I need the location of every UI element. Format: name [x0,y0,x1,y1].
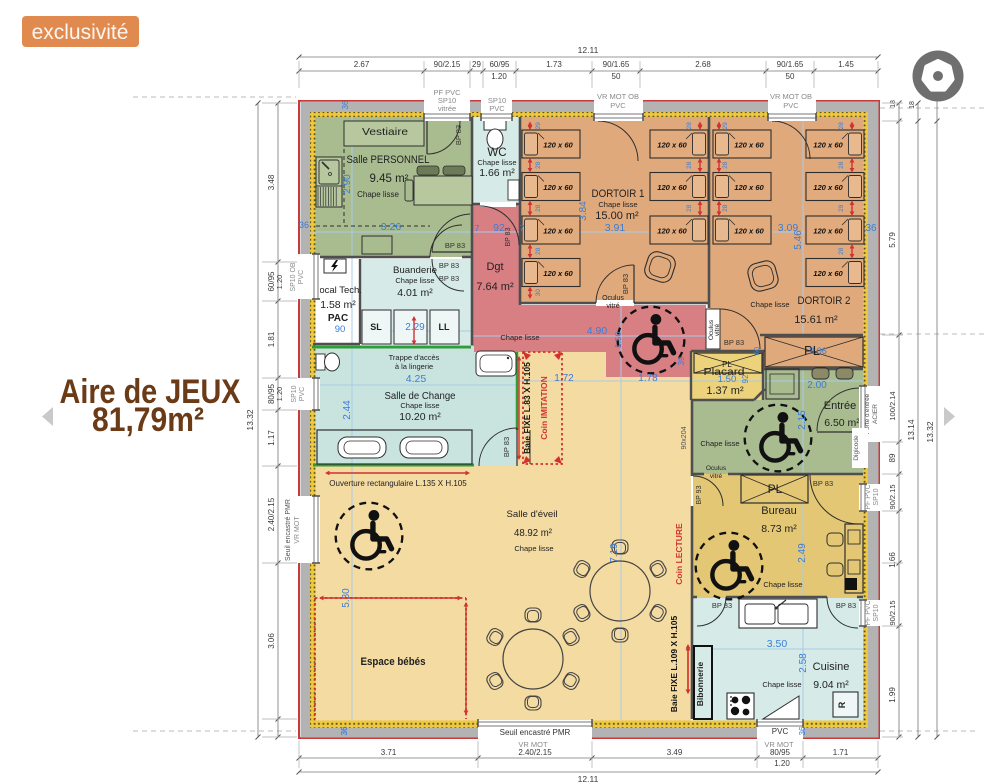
svg-text:3.84: 3.84 [578,201,589,221]
svg-text:BP 83: BP 83 [813,479,833,488]
svg-text:3.91: 3.91 [605,222,626,234]
svg-text:5.30: 5.30 [341,588,352,608]
svg-text:PVC: PVC [489,104,505,113]
svg-text:28: 28 [686,161,693,169]
svg-text:60: 60 [752,347,761,355]
svg-text:SP10: SP10 [873,488,880,505]
svg-text:50: 50 [786,72,795,81]
svg-text:1.81: 1.81 [267,331,276,347]
svg-text:BP 83: BP 83 [445,241,465,250]
svg-text:15.61 m²: 15.61 m² [794,314,838,326]
svg-text:9.04 m²: 9.04 m² [813,679,849,691]
svg-text:SP10 OB: SP10 OB [290,262,297,292]
svg-text:1.78: 1.78 [638,373,658,384]
svg-text:Salle PERSONNEL: Salle PERSONNEL [347,154,430,166]
svg-text:90/2.15: 90/2.15 [888,600,897,625]
svg-text:ACIER: ACIER [872,404,879,424]
svg-text:7: 7 [520,223,525,233]
svg-text:2.00: 2.00 [807,380,827,391]
svg-text:Chape lisse: Chape lisse [514,544,553,553]
svg-text:1.66: 1.66 [888,552,897,568]
svg-text:2.49: 2.49 [797,543,808,563]
svg-text:Bibonnerie: Bibonnerie [695,662,705,707]
svg-text:Dgt: Dgt [486,261,503,273]
svg-text:Chape lisse: Chape lisse [750,300,789,309]
svg-text:BP 83: BP 83 [502,437,511,457]
svg-text:2.68: 2.68 [695,60,711,69]
svg-text:BP 83: BP 83 [724,338,744,347]
svg-text:DORTOIR 2: DORTOIR 2 [798,295,851,307]
svg-text:89: 89 [888,453,897,462]
svg-text:Chape lisse: Chape lisse [400,401,439,410]
svg-text:Cuisine: Cuisine [813,661,850,673]
svg-text:3.48: 3.48 [267,174,276,190]
svg-text:39: 39 [677,356,686,365]
svg-text:4.25: 4.25 [406,373,427,385]
svg-text:12.11: 12.11 [578,774,599,784]
svg-text:Baie FIXE L.109 X H.105: Baie FIXE L.109 X H.105 [669,616,679,713]
svg-text:PVC: PVC [298,270,305,284]
svg-text:2.40/2.15: 2.40/2.15 [267,497,276,531]
svg-text:1.58 m²: 1.58 m² [320,299,356,311]
svg-text:1.99: 1.99 [888,687,897,703]
svg-text:BP 83: BP 83 [621,274,630,294]
svg-text:50: 50 [612,72,621,81]
svg-text:Bureau: Bureau [761,505,796,517]
svg-text:Chape lisse: Chape lisse [357,190,399,199]
svg-text:Buanderie: Buanderie [393,265,437,276]
svg-text:5.46: 5.46 [793,230,804,250]
svg-text:15.00 m²: 15.00 m² [595,210,639,222]
svg-text:80/95: 80/95 [770,748,791,757]
svg-text:90x204: 90x204 [681,426,688,449]
svg-text:28: 28 [535,204,542,212]
svg-text:4.01 m²: 4.01 m² [397,287,433,299]
svg-text:Chape lisse: Chape lisse [762,680,801,689]
svg-text:7.64 m²: 7.64 m² [476,281,514,293]
svg-text:1.20: 1.20 [491,72,507,81]
svg-text:Seuil encastré PMR: Seuil encastré PMR [285,499,292,561]
svg-text:BP 83: BP 83 [454,125,463,145]
svg-text:13.32: 13.32 [245,409,255,431]
svg-text:Coin LECTURE: Coin LECTURE [674,523,684,585]
svg-text:28: 28 [535,247,542,255]
svg-text:1.66 m²: 1.66 m² [479,167,515,179]
svg-text:PVC: PVC [783,101,799,110]
svg-text:29: 29 [472,60,481,69]
svg-text:Salle d'éveil: Salle d'éveil [507,509,558,520]
svg-text:Chape lisse: Chape lisse [395,276,434,285]
svg-text:3.50: 3.50 [767,638,788,650]
svg-text:R: R [837,701,847,708]
svg-text:90/2.15: 90/2.15 [888,484,897,509]
svg-text:90/1.65: 90/1.65 [603,60,630,69]
svg-text:10.20 m²: 10.20 m² [399,411,441,423]
svg-text:4.90: 4.90 [587,325,608,337]
svg-text:2.40/2.15: 2.40/2.15 [518,748,552,757]
svg-text:Digicode: Digicode [853,435,860,461]
svg-text:Chape lisse: Chape lisse [500,333,539,342]
svg-text:PVC: PVC [610,101,626,110]
svg-text:28: 28 [686,204,693,212]
svg-text:1.37 m²: 1.37 m² [706,385,744,397]
svg-text:2.06: 2.06 [809,346,827,356]
svg-text:1.45: 1.45 [838,60,854,69]
svg-text:1.50: 1.50 [613,331,623,348]
svg-text:LL: LL [439,322,450,332]
svg-text:BP 83: BP 83 [836,601,856,610]
svg-text:Entrée: Entrée [824,400,856,412]
svg-text:BP 83: BP 83 [439,274,459,283]
svg-text:9.45 m²: 9.45 m² [370,173,409,185]
svg-text:PF PVC: PF PVC [865,600,872,625]
svg-text:BP 93: BP 93 [696,485,703,504]
svg-text:36: 36 [865,223,877,234]
svg-text:28: 28 [838,247,845,255]
svg-text:28: 28 [838,161,845,169]
svg-text:Trappe d'accès: Trappe d'accès [389,353,440,362]
svg-text:3.06: 3.06 [267,633,276,649]
svg-text:28: 28 [722,204,729,212]
svg-text:28: 28 [535,161,542,169]
svg-text:3.71: 3.71 [381,748,397,757]
svg-text:Vestiaire: Vestiaire [362,126,408,138]
svg-text:18: 18 [890,100,897,108]
svg-text:28: 28 [686,122,693,130]
svg-text:2.90: 2.90 [342,174,353,194]
svg-text:PVC: PVC [299,387,306,401]
svg-text:100/2.14: 100/2.14 [888,391,897,420]
svg-text:PL: PL [768,482,783,496]
svg-text:2.67: 2.67 [354,60,370,69]
svg-text:vitrée: vitrée [438,104,456,113]
svg-text:PVC: PVC [772,727,789,736]
svg-text:Baie FIXE L.83 X H.105: Baie FIXE L.83 X H.105 [522,362,532,454]
svg-text:2.15: 2.15 [797,410,808,430]
svg-text:29: 29 [838,204,845,212]
svg-text:1.20: 1.20 [275,387,284,402]
svg-text:28: 28 [722,161,729,169]
svg-text:PF PVC: PF PVC [865,484,872,509]
svg-text:60/95: 60/95 [489,60,510,69]
svg-text:Chape lisse: Chape lisse [477,158,516,167]
svg-text:28: 28 [838,122,845,130]
svg-text:7.19: 7.19 [609,543,620,563]
svg-text:29: 29 [722,122,729,130]
svg-text:2.44: 2.44 [342,400,353,420]
svg-text:DORTOIR 1: DORTOIR 1 [592,188,645,200]
svg-text:90: 90 [335,324,346,335]
svg-text:2.29: 2.29 [405,322,425,333]
svg-text:Espace bébés: Espace bébés [361,656,426,668]
svg-text:81,79m²: 81,79m² [92,401,204,439]
svg-text:PAC: PAC [328,313,348,324]
svg-text:48.92 m²: 48.92 m² [514,528,553,539]
svg-text:8.73 m²: 8.73 m² [761,523,797,535]
svg-text:exclusivité: exclusivité [32,21,129,44]
svg-text:SP10: SP10 [291,385,298,402]
svg-text:90/1.65: 90/1.65 [777,60,804,69]
svg-text:92: 92 [493,222,505,234]
svg-text:1.17: 1.17 [267,430,276,446]
svg-text:1.72: 1.72 [554,373,574,384]
svg-text:Oculus: Oculus [602,295,624,302]
svg-text:Ouverture rectangulaire L.135: Ouverture rectangulaire L.135 X H.105 [329,479,467,488]
svg-text:SP10: SP10 [873,604,880,621]
svg-text:36: 36 [798,726,807,735]
svg-text:36: 36 [340,726,349,735]
svg-text:36: 36 [341,100,350,109]
svg-text:BP 83: BP 83 [505,227,512,246]
svg-text:Chape lisse: Chape lisse [763,580,802,589]
svg-text:7: 7 [475,223,480,233]
svg-text:1.20: 1.20 [774,759,790,768]
svg-text:5.79: 5.79 [888,232,897,248]
svg-text:à la lingerie: à la lingerie [395,362,433,371]
svg-text:vitré: vitré [714,323,721,336]
svg-text:3.49: 3.49 [667,748,683,757]
svg-text:Seuil encastré PMR: Seuil encastré PMR [500,728,571,737]
svg-text:VR MOT OB: VR MOT OB [770,92,812,101]
svg-text:vitré: vitré [606,303,619,310]
svg-text:1.71: 1.71 [833,748,849,757]
svg-text:Chape lisse: Chape lisse [598,200,637,209]
svg-text:Chape lisse: Chape lisse [700,439,739,448]
svg-text:1.50: 1.50 [718,374,737,385]
svg-text:18: 18 [909,101,916,109]
svg-text:VR MOT OB: VR MOT OB [597,92,639,101]
svg-text:30: 30 [535,289,542,297]
svg-text:vitré: vitré [710,473,723,480]
svg-text:Oculus: Oculus [706,465,727,472]
svg-text:VR MOT: VR MOT [294,516,301,544]
svg-text:92: 92 [741,374,750,383]
svg-text:1.73: 1.73 [546,60,562,69]
svg-text:13.32: 13.32 [925,421,935,443]
svg-text:36: 36 [299,220,309,230]
svg-text:2.58: 2.58 [798,653,809,673]
svg-text:SL: SL [370,322,382,332]
svg-text:6.50 m²: 6.50 m² [824,417,860,429]
svg-text:Local Tech.: Local Tech. [314,285,362,296]
svg-text:13.14: 13.14 [906,419,916,441]
svg-text:12.11: 12.11 [578,45,599,55]
svg-text:90/2.15: 90/2.15 [434,60,461,69]
svg-text:BP 83: BP 83 [712,601,732,610]
svg-text:BP 83: BP 83 [439,261,459,270]
svg-text:1.20: 1.20 [275,275,284,290]
svg-text:Coin IMITATION: Coin IMITATION [539,376,549,439]
svg-text:29: 29 [535,122,542,130]
svg-text:3.26: 3.26 [381,221,402,233]
